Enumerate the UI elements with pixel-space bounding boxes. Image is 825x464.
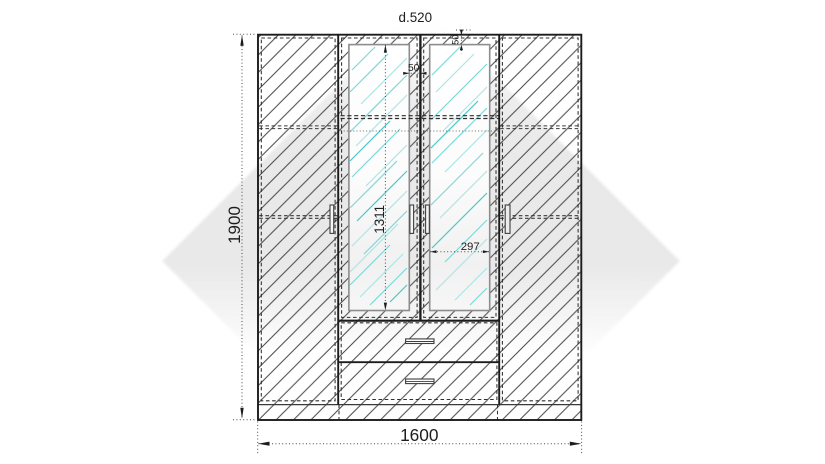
svg-text:1900: 1900 — [225, 206, 244, 244]
svg-text:50: 50 — [408, 62, 420, 74]
svg-text:1600: 1600 — [400, 425, 438, 445]
svg-text:d.520: d.520 — [399, 10, 433, 25]
svg-text:50: 50 — [451, 35, 461, 45]
svg-text:1311: 1311 — [372, 205, 387, 234]
svg-text:297: 297 — [461, 241, 480, 253]
